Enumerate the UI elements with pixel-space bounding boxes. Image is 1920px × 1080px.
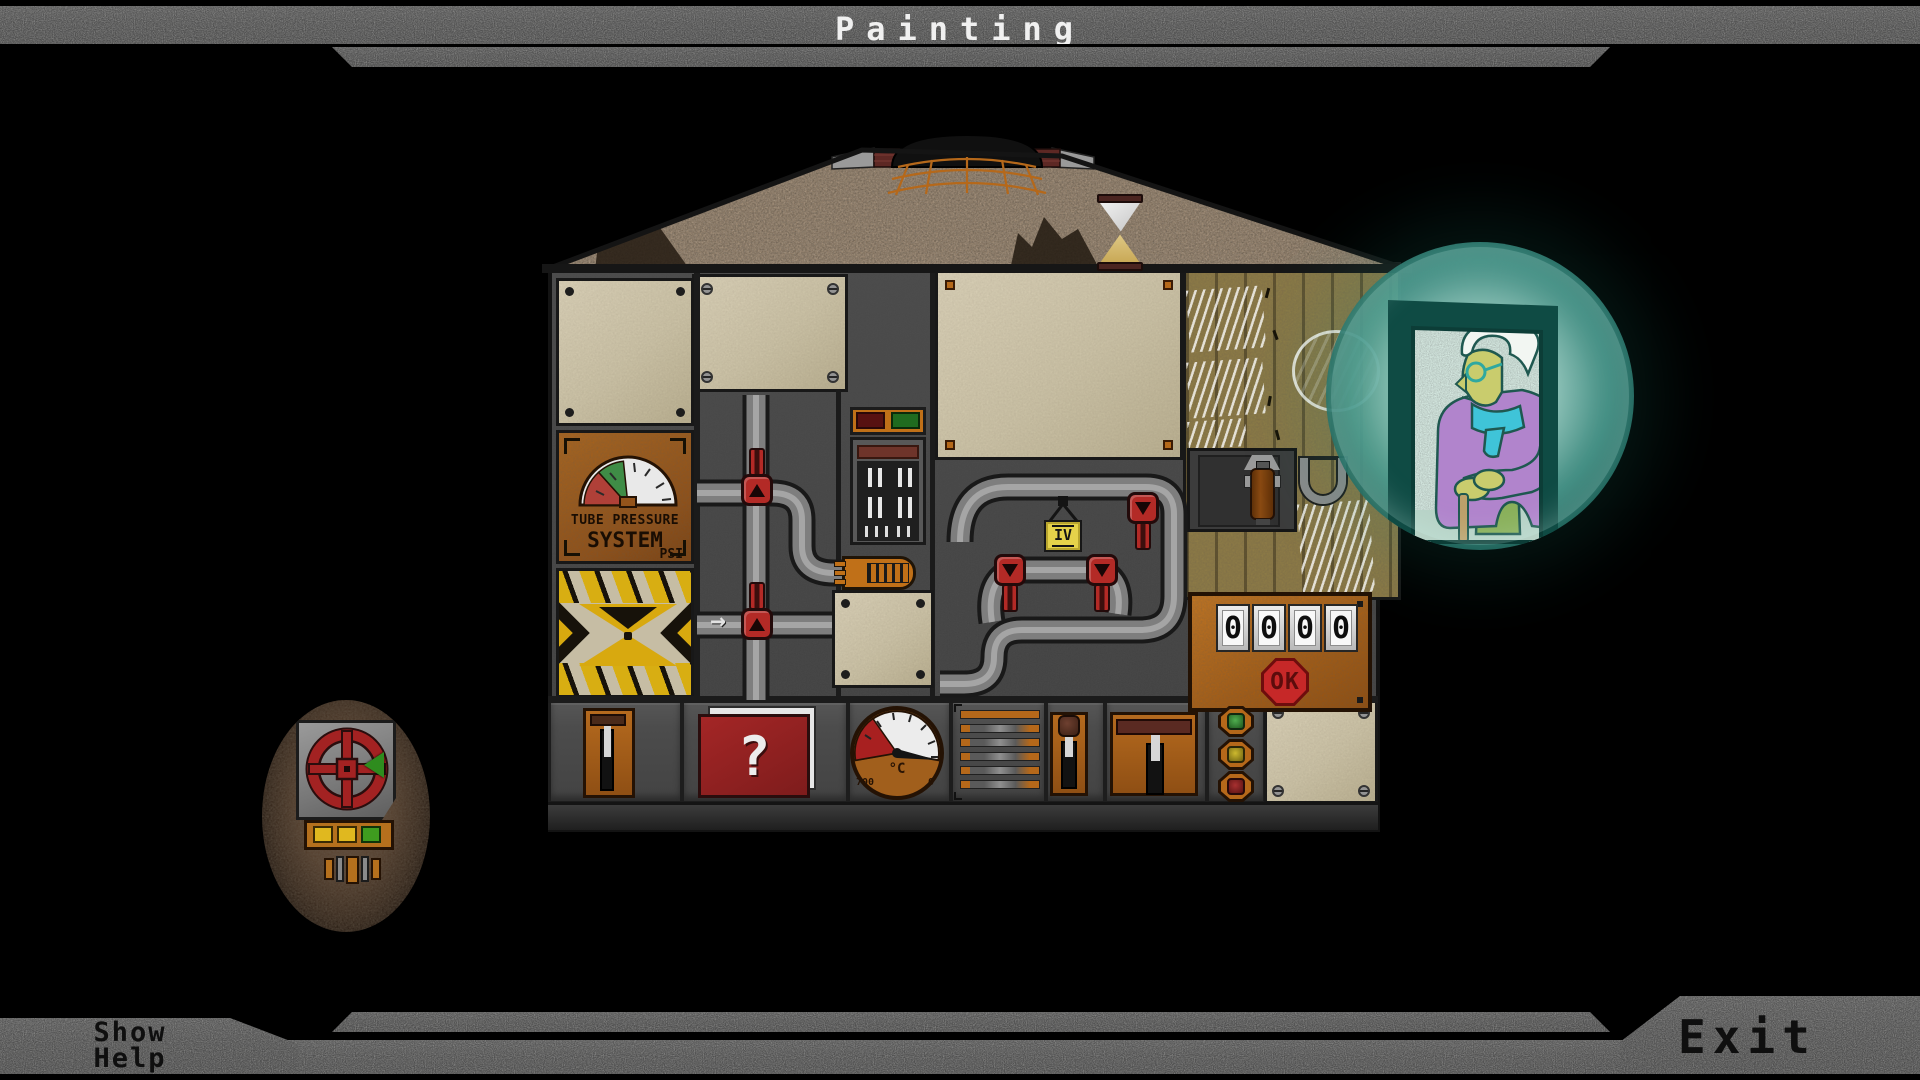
wheel-pointer-icon (364, 752, 384, 778)
exit-label: Exit (1678, 1010, 1817, 1064)
valve-tag-label: IV (1052, 525, 1074, 546)
red-lens (1227, 778, 1245, 795)
page-title: Painting (0, 10, 1920, 44)
panel-mid-center (832, 590, 934, 688)
yellow-lens (1227, 746, 1245, 763)
title-bar: Painting (0, 6, 1920, 44)
wheel-meter-strip (304, 820, 394, 850)
valve-1-stem (749, 448, 765, 476)
meter-block-yellow-1 (313, 826, 333, 843)
cell-beige-panel (1264, 700, 1378, 804)
t-lever[interactable] (583, 708, 635, 798)
wide-t-lever[interactable] (1110, 712, 1198, 796)
pipe-fittings (324, 856, 384, 886)
meter-block-yellow-2 (337, 826, 357, 843)
corrugated-heater-unit (842, 556, 916, 590)
wide-t-lever-handle (1116, 719, 1192, 735)
knob-slider-knob (1058, 715, 1080, 737)
valve-roman-tag[interactable]: IV (1044, 520, 1082, 552)
valve-5-stem (1094, 584, 1110, 612)
roof (540, 133, 1415, 278)
pipe-valve-1[interactable] (741, 474, 773, 506)
pipe-valve-3[interactable] (1127, 492, 1159, 524)
temp-gauge-unit: °C (889, 761, 906, 777)
hourglass-bottom-bulb (1100, 233, 1140, 263)
show-help-button[interactable]: Show Help (0, 1018, 298, 1074)
valve-wheel-vignette (262, 700, 430, 932)
valve-4-stem (1002, 584, 1018, 612)
doorway-scene (1326, 242, 1634, 550)
hourglass[interactable] (1097, 194, 1143, 272)
game-screen: TUBE PRESSURE SYSTEM PSI (0, 0, 1920, 1080)
grandma-porthole[interactable] (1326, 242, 1634, 550)
pipe-network (548, 268, 1378, 702)
frame-bottom-strip (332, 1012, 1610, 1032)
show-help-label-line2: Help (40, 1046, 220, 1072)
green-lens (1227, 713, 1245, 730)
exit-button[interactable]: Exit (1620, 996, 1920, 1074)
tag-hook-icon (1058, 496, 1068, 506)
valve-3-stem (1135, 522, 1151, 550)
temp-gauge-max: 700 (856, 777, 874, 788)
temperature-gauge: °C 700 0 (849, 705, 946, 802)
book-question-mark: ? (738, 725, 771, 788)
vent-grille (954, 704, 1046, 800)
flow-arrow-icon: → (698, 606, 738, 640)
pipe-valve-2[interactable] (741, 608, 773, 640)
t-lever-handle (590, 714, 626, 726)
meter-block-green (361, 826, 381, 843)
machine-base-strip (548, 802, 1378, 830)
pipe-valve-5[interactable] (1086, 554, 1118, 586)
frame-top-strip (332, 47, 1610, 67)
help-book[interactable]: ? (698, 706, 818, 798)
hourglass-top-bulb (1100, 203, 1140, 233)
temp-gauge-min: 0 (928, 777, 934, 788)
pipe-valve-4[interactable] (994, 554, 1026, 586)
book-cover: ? (698, 714, 810, 798)
knob-slider[interactable] (1050, 712, 1088, 796)
valve-2-stem (749, 582, 765, 610)
